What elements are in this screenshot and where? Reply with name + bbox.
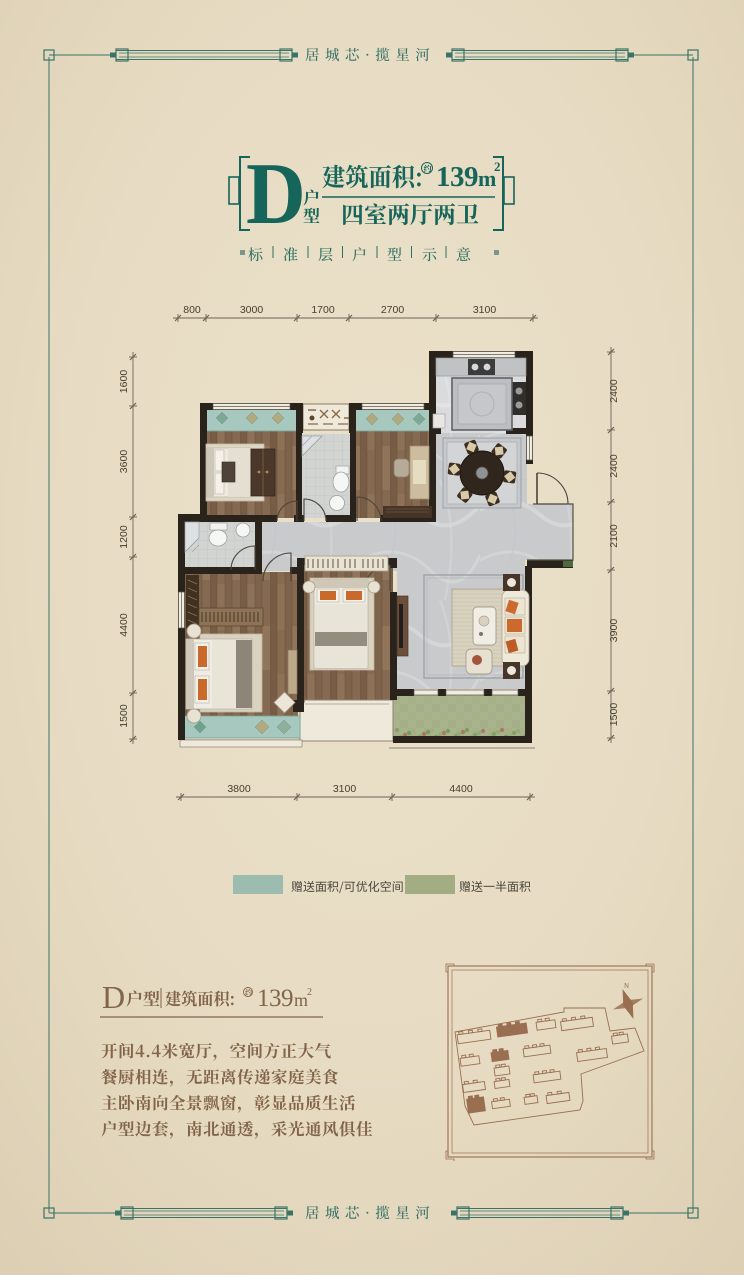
svg-text:1700: 1700 [311, 304, 335, 316]
svg-text:3900: 3900 [608, 619, 620, 643]
svg-text:2400: 2400 [608, 454, 620, 478]
svg-text:1500: 1500 [608, 703, 620, 727]
svg-text:3000: 3000 [240, 304, 264, 316]
svg-text:800: 800 [183, 304, 201, 316]
svg-text:D: D [246, 146, 306, 243]
svg-text:2: 2 [494, 159, 501, 174]
svg-text:4400: 4400 [118, 613, 130, 637]
svg-text:1200: 1200 [118, 525, 130, 549]
svg-text:3100: 3100 [473, 304, 497, 316]
svg-text:3800: 3800 [227, 783, 251, 795]
svg-text:1500: 1500 [118, 704, 130, 728]
svg-text:m: m [294, 990, 308, 1010]
svg-text:2400: 2400 [608, 379, 620, 403]
svg-text:D: D [102, 979, 125, 1015]
svg-text:2100: 2100 [608, 524, 620, 548]
svg-text:2: 2 [307, 987, 312, 998]
svg-text:2700: 2700 [381, 304, 405, 316]
svg-text:3: 3 [269, 985, 282, 1012]
svg-text:3100: 3100 [333, 783, 357, 795]
svg-text:1: 1 [436, 161, 451, 193]
svg-text:9: 9 [281, 985, 294, 1012]
svg-text:9: 9 [464, 161, 479, 193]
svg-text:3600: 3600 [118, 450, 130, 474]
svg-text:4400: 4400 [449, 783, 473, 795]
svg-text:1600: 1600 [118, 370, 130, 394]
svg-text:1: 1 [257, 985, 270, 1012]
svg-text:3: 3 [450, 161, 465, 193]
